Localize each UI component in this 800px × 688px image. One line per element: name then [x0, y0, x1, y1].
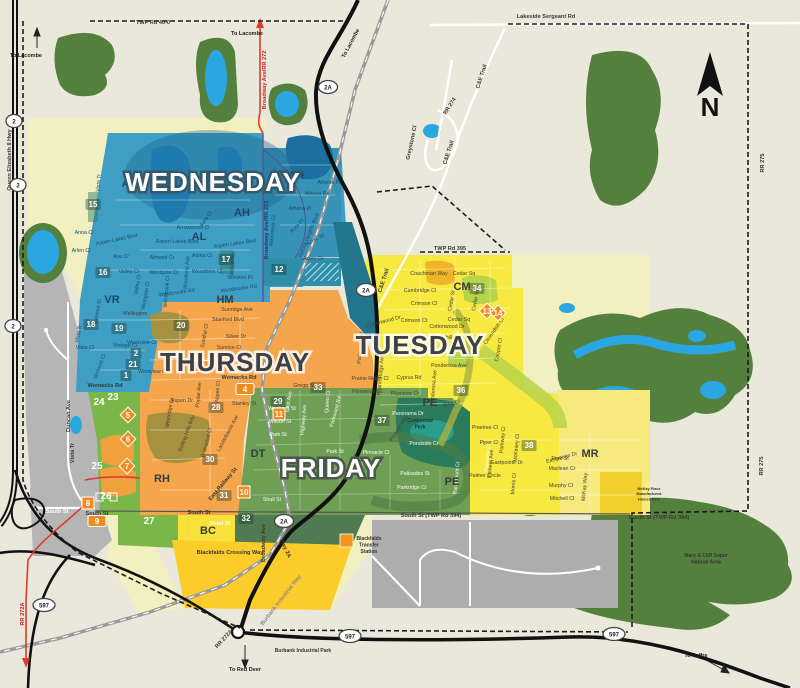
highway-shield: 2A	[357, 284, 376, 297]
district-label: PE	[445, 476, 460, 488]
zone-badge-number: 11	[275, 410, 284, 419]
street-label: Wellington	[123, 311, 148, 317]
street-label: Coachman Way	[410, 271, 448, 277]
road-label: South St	[46, 509, 69, 515]
zone-badge-number: 13	[483, 307, 492, 316]
zone-badge: 24	[93, 397, 105, 408]
zone-badge: 17	[219, 254, 234, 265]
district-label: VR	[104, 294, 119, 306]
street-label: Ponderosa Ave	[431, 363, 467, 369]
poi-label-line: Manufactured	[637, 492, 663, 496]
street-label: Panorama Dr	[392, 411, 424, 417]
poi-label-line: Blackfalds	[356, 536, 381, 542]
road-label: TWP Rd 395	[434, 246, 466, 252]
street-label: Pinewood Cl	[352, 389, 382, 395]
street-label: Ava Cr	[113, 254, 129, 260]
highway-shield-number: 2A	[362, 289, 370, 295]
zone-badge-number: 27	[143, 516, 155, 527]
road-label: Broadway Ave	[261, 524, 267, 562]
highway-shield: 597	[603, 628, 625, 641]
zone-badge: 27	[143, 516, 155, 527]
poi-label-line: Homes Park	[638, 497, 661, 501]
zone-badge-number: 2	[134, 349, 139, 358]
road-label: RR 272A	[20, 602, 26, 625]
zone-badge-number: 34	[473, 284, 482, 293]
district-label: HM	[216, 294, 233, 306]
poi-label-line: Centennial	[407, 418, 433, 424]
street-label: Stanley St	[232, 401, 257, 407]
collection-schedule-map: N Vista TrVista TrAnna ClArlen ClAva CrA…	[0, 0, 800, 688]
zone-badge-number: 26	[100, 491, 112, 502]
zone-badge: 19	[112, 323, 127, 334]
road-label: Blackfalds Crossing Way	[197, 550, 265, 556]
zone-label-thursday: THURSDAY	[160, 347, 310, 377]
highway-shield: 597	[33, 599, 55, 612]
street-label: Crimson Ct	[401, 318, 428, 324]
zone-badge-number: 23	[107, 392, 119, 403]
zone-badge-number: 36	[457, 386, 466, 395]
zone-label-friday: FRIDAY	[281, 453, 381, 483]
zone-badge-number: 6	[126, 435, 131, 444]
road-label: Womacks Rd	[87, 383, 123, 389]
highway-shield-number: 2A	[324, 86, 332, 92]
road-label: Vista Tr	[70, 442, 76, 463]
street-label: Park St	[269, 432, 287, 438]
poi-label: McKay PlaceManufacturedHomes Park	[637, 487, 663, 501]
district-label: CM	[453, 281, 470, 293]
street-label: Cedar Sq	[448, 317, 470, 323]
direction-label: To Lacombe	[10, 53, 42, 59]
zone-badge: 26	[100, 491, 112, 502]
zone-badge: 25	[91, 461, 103, 472]
zone-badge-number: 4	[243, 385, 248, 394]
zone-badge-number: 21	[129, 360, 138, 369]
street-label: Westgate Cr	[149, 270, 179, 276]
zone-badge: 28	[209, 402, 224, 413]
poi-label-line: Station	[361, 549, 378, 555]
zone-badge-number: 7	[125, 462, 130, 471]
street-label: Maclean Cr	[548, 466, 575, 472]
zone-badge: 9	[88, 516, 106, 527]
zone-badge-number: 33	[314, 383, 323, 392]
poi-label-line: McKay Place	[637, 487, 660, 491]
street-label: Athena Pl	[289, 206, 312, 212]
zone-badge-number: 30	[206, 455, 215, 464]
street-label: Valley Cr	[118, 269, 139, 275]
zone-badge-number: 19	[115, 324, 124, 333]
compass-label: N	[701, 92, 720, 122]
highway-shield: 2A	[319, 81, 338, 94]
poi-label: Burbank Industrial Park	[275, 648, 332, 654]
map-canvas: N Vista TrVista TrAnna ClArlen ClAva CrA…	[0, 0, 800, 688]
highway-shield: 2A	[275, 515, 294, 528]
zone-badge: 31	[217, 490, 232, 501]
transfer-station-icon	[340, 534, 353, 547]
zone-badge: 1	[121, 370, 132, 381]
highway-shield-number: 597	[345, 635, 356, 641]
zone-label-wednesday: WEDNESDAY	[125, 167, 301, 197]
street-label: Sunridge Ave	[221, 307, 252, 313]
district-label: DT	[251, 448, 266, 460]
zone-badge-number: 31	[220, 491, 229, 500]
highway-shield: 2	[6, 115, 22, 128]
zone-badge: 32	[239, 513, 254, 524]
zone-badge: 29	[271, 396, 286, 407]
zone-badge-number: 5	[126, 411, 131, 420]
district-label: RH	[154, 473, 170, 485]
street-label: Silver Dr	[226, 334, 247, 340]
street-label: Plumtree Cr	[391, 391, 419, 397]
street-label: Pinetree Cl	[472, 425, 498, 431]
poi-label-line: Transfer	[359, 542, 379, 548]
highway-shield-number: 597	[609, 633, 620, 639]
zone-badge: 11	[273, 408, 285, 420]
poi-label-line: Park	[415, 424, 426, 430]
street-label: Murphy Cl	[549, 483, 573, 489]
street-label: Crimson Cl	[411, 301, 437, 307]
road-label: South St (TWP Rd 394)	[401, 513, 462, 519]
road-label: RR 275	[759, 457, 765, 476]
zone-badge-number: 28	[212, 403, 221, 412]
zone-badge: 8	[82, 497, 94, 509]
poi-label-line: Mary & Cliff Soper	[684, 553, 727, 559]
district-label: AL	[192, 231, 207, 243]
road-label: Duncan Ave	[66, 400, 72, 432]
street-label: Cedar Sq	[453, 271, 475, 277]
zone-badge: 38	[522, 440, 537, 451]
zone-badge-number: 12	[275, 265, 284, 274]
zone-badge: 33	[311, 382, 326, 393]
zone-badge-number: 8	[86, 499, 91, 508]
district-label: PE	[423, 397, 438, 409]
road-label: South St	[188, 510, 211, 516]
road-label: Lakeside Sergeant Rd	[517, 14, 576, 20]
zone-label-tuesday: TUESDAY	[356, 330, 485, 360]
zone-badge-number: 18	[87, 320, 96, 329]
street-label: Vista Cl	[76, 345, 94, 351]
zone-badge: 30	[203, 454, 218, 465]
zone-badge-number: 10	[240, 488, 249, 497]
street-label: Woodbine Cl	[192, 269, 222, 275]
road-label: South St (TWP Rd 394)	[629, 515, 690, 521]
street-label: Anna Cl	[75, 230, 94, 236]
street-label: Pondside Cr	[409, 441, 438, 447]
zone-badge: 4	[236, 384, 254, 395]
zone-badge-number: 37	[378, 416, 387, 425]
street-label: Athena Rd	[304, 191, 329, 197]
zone-badge-number: 17	[222, 255, 231, 264]
direction-label: To Lacombe	[231, 31, 263, 37]
zone-badge: 37	[375, 415, 390, 426]
street-label: Piper Cl	[480, 440, 499, 446]
zone-badge: 18	[84, 319, 99, 330]
zone-badge-number: 32	[242, 514, 251, 523]
road-label: Broadway Ave/RR 272	[262, 51, 268, 110]
district-label: AH	[234, 207, 250, 219]
zone-badge-number: 1	[124, 371, 129, 380]
street-label: Parkridge Cr	[397, 485, 427, 491]
zone-badge: 20	[174, 320, 189, 331]
street-label: Palisades St	[400, 471, 430, 477]
poi-label-line: Natural Area	[691, 559, 721, 565]
road-label: Broadway Ave/RR 272	[264, 201, 270, 260]
street-label: Westview Cr	[127, 340, 157, 346]
zone-badge: 23	[107, 392, 119, 403]
zone-badge-number: 15	[89, 200, 98, 209]
zone-badge: 10	[238, 486, 250, 498]
zone-badge-number: 38	[525, 441, 534, 450]
zone-badge-number: 9	[95, 517, 100, 526]
zone-badge-number: 20	[177, 321, 186, 330]
street-label: Athena Pl	[318, 180, 341, 186]
road-label: RR 275	[760, 154, 766, 173]
highway-shield: 2	[10, 179, 26, 192]
street-label: Arlen Cl	[72, 248, 91, 254]
zone-badge-number: 29	[274, 397, 283, 406]
zone-badge: 12	[272, 264, 287, 275]
zone-badge: 34	[470, 283, 485, 294]
highway-shield-number: 597	[39, 604, 50, 610]
zone-badge: 2	[131, 348, 142, 359]
street-label: Cambridge Cl	[404, 288, 436, 294]
street-label: Palmer Circle	[469, 473, 501, 479]
street-label: Mitchell Cl	[550, 496, 574, 502]
district-label: MR	[581, 448, 598, 460]
direction-label: To Red Deer	[229, 667, 262, 673]
highway-shield-number: 2A	[280, 520, 288, 526]
direction-label: To Joffre	[684, 653, 707, 659]
zone-badge: 36	[454, 385, 469, 396]
district-label: BC	[200, 525, 216, 537]
street-label: Park St	[551, 456, 569, 462]
zone-badge: 21	[126, 359, 141, 370]
highway-shield: 597	[339, 630, 361, 643]
zone-badge-number: 14	[494, 309, 503, 318]
street-label: Prairie Ridge Cl	[351, 376, 388, 382]
street-label: Aztec Cr	[303, 256, 324, 262]
street-label: Stanford Blvd	[212, 317, 244, 323]
poi-label-line: Burbank Industrial Park	[275, 648, 332, 654]
street-label: Shull St	[263, 497, 282, 503]
zone-badge: 15	[86, 199, 101, 210]
street-label: Cyprus Rd	[396, 375, 421, 381]
highway-shield: 2	[5, 320, 21, 333]
road-label: TWP Rd 40-0	[136, 20, 170, 26]
zone-badge: 16	[96, 267, 111, 278]
zone-badge-number: 16	[99, 268, 108, 277]
zone-badge-number: 24	[93, 397, 105, 408]
street-label: Almond Cr	[149, 255, 174, 261]
zone-badge-number: 25	[91, 461, 103, 472]
street-label: Adina Cl	[192, 253, 212, 259]
